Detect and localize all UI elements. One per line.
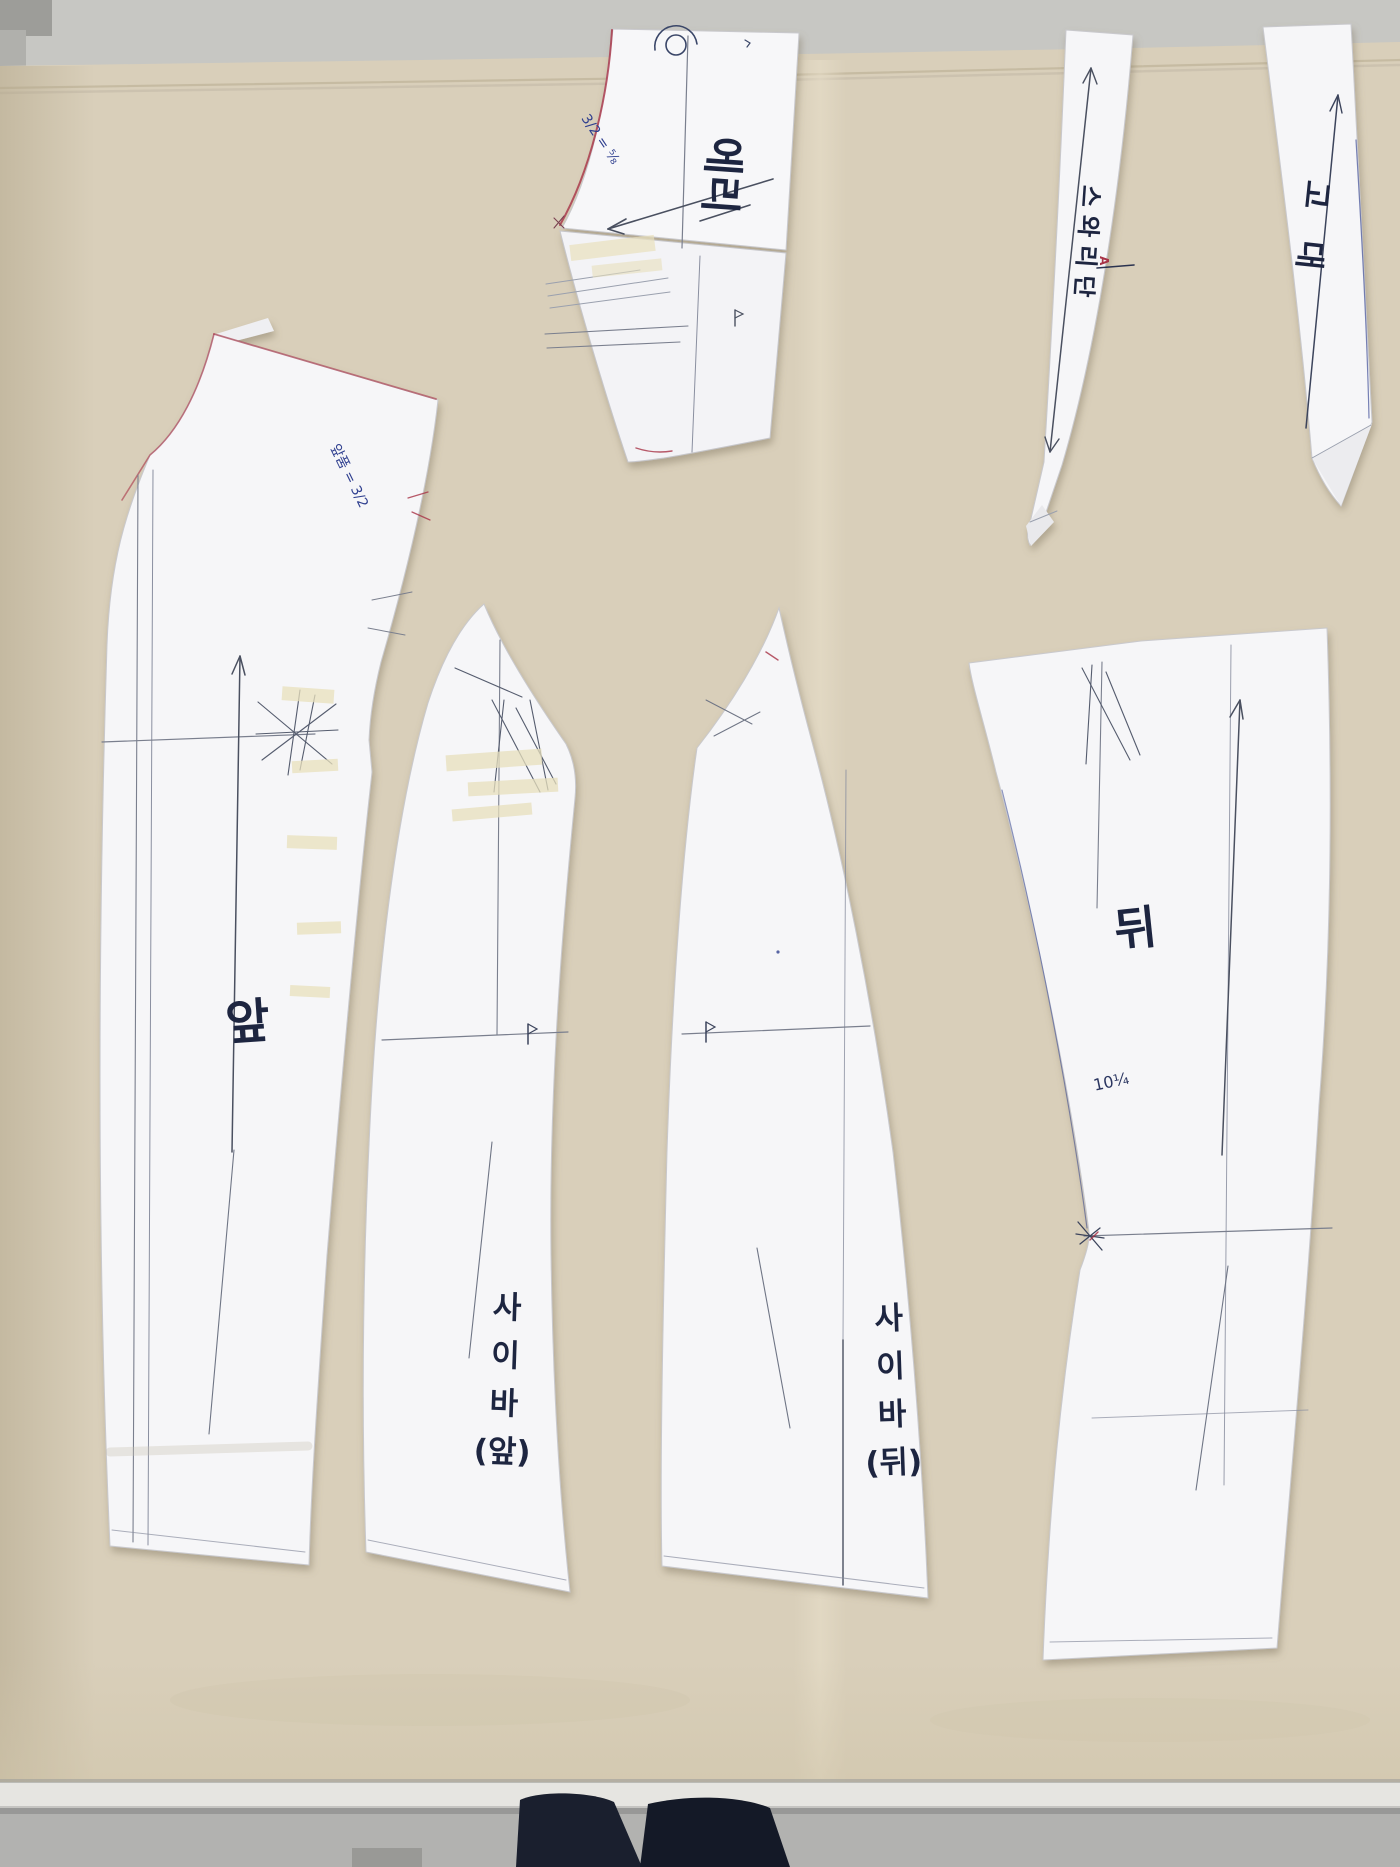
front-paper-crease [110, 1446, 308, 1452]
pattern-table-photo: 앞 뒤 10¼ 에리 3/2 = ⅝ 앞품 = 3/2 스와리단 A 고대 사 … [0, 0, 1400, 1867]
table-edge-and-floor [0, 1779, 1400, 1867]
photo-scene [0, 0, 1400, 1867]
